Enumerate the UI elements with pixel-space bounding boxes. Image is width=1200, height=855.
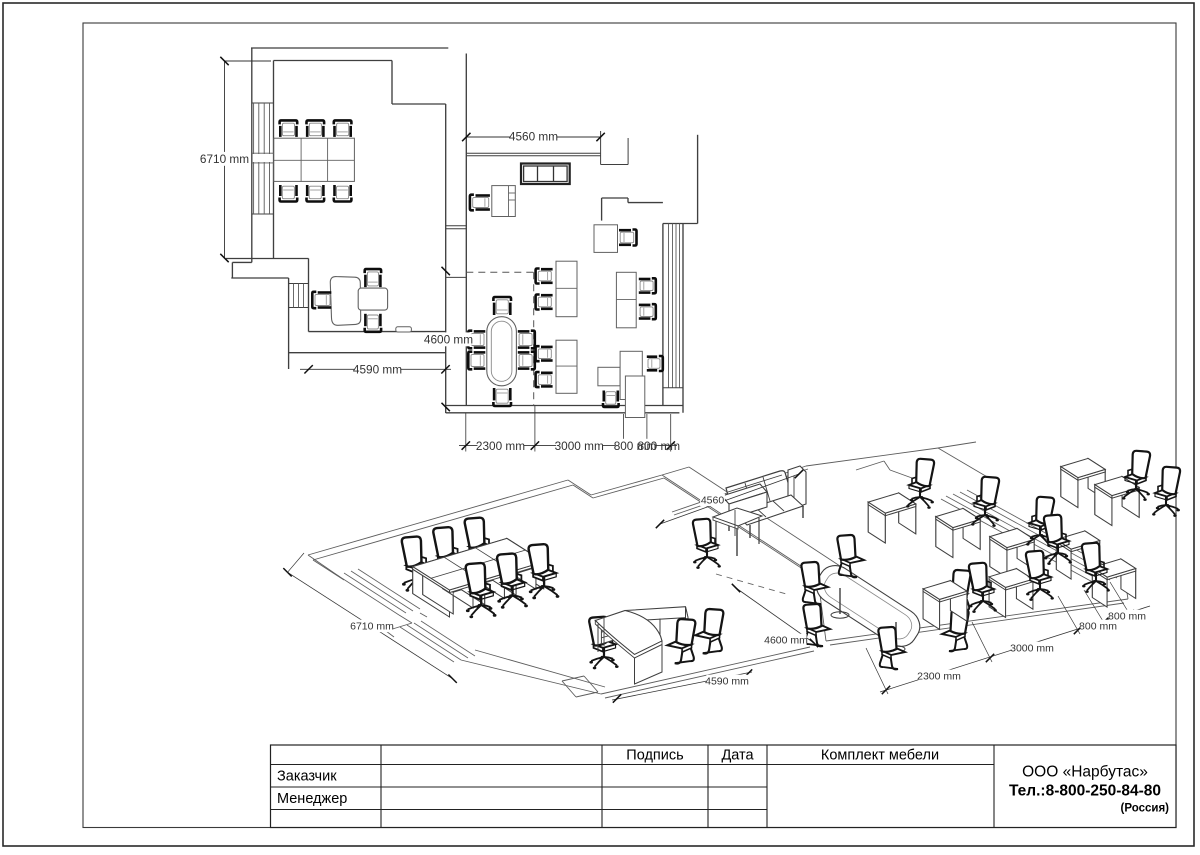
svg-text:4590 mm: 4590 mm: [705, 676, 749, 688]
svg-text:4600 mm: 4600 mm: [764, 635, 808, 647]
svg-text:4590 mm: 4590 mm: [353, 362, 402, 376]
svg-text:3000 mm: 3000 mm: [1010, 643, 1054, 655]
svg-text:4600 mm: 4600 mm: [424, 333, 473, 347]
svg-text:3000 mm: 3000 mm: [555, 439, 604, 453]
svg-text:800 mm: 800 mm: [637, 439, 680, 453]
svg-text:6710 mm: 6710 mm: [350, 621, 394, 633]
svg-text:ООО «Нарбутас»: ООО «Нарбутас»: [1022, 763, 1148, 780]
svg-text:800 mm: 800 mm: [1108, 611, 1146, 623]
svg-text:Тел.:8-800-250-84-80: Тел.:8-800-250-84-80: [1009, 782, 1161, 799]
svg-text:(Россия): (Россия): [1121, 802, 1170, 814]
svg-text:2300 mm: 2300 mm: [917, 671, 961, 683]
svg-text:6710 mm: 6710 mm: [200, 152, 249, 166]
svg-text:4560 mm: 4560 mm: [509, 130, 558, 144]
svg-text:Заказчик: Заказчик: [277, 769, 337, 785]
svg-text:Комплект мебели: Комплект мебели: [821, 748, 939, 764]
svg-text:2300 mm: 2300 mm: [476, 439, 525, 453]
svg-text:4560: 4560: [701, 495, 725, 507]
svg-text:Подпись: Подпись: [626, 748, 683, 764]
svg-text:Менеджер: Менеджер: [277, 791, 347, 807]
svg-text:Дата: Дата: [721, 748, 754, 764]
